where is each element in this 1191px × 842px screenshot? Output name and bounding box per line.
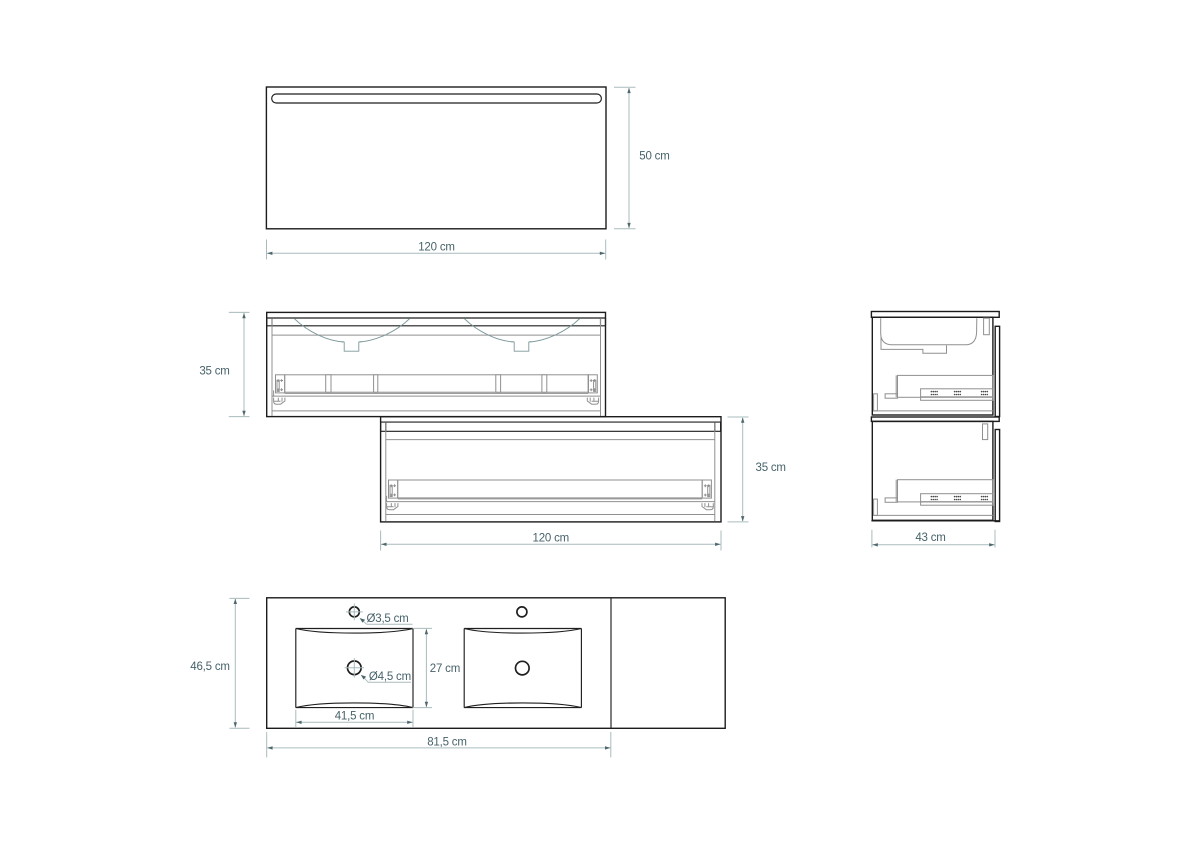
svg-text:43 cm: 43 cm (915, 532, 945, 544)
svg-text:35 cm: 35 cm (756, 462, 786, 474)
svg-text:120 cm: 120 cm (533, 532, 570, 544)
svg-text:120 cm: 120 cm (418, 242, 455, 254)
svg-text:35 cm: 35 cm (199, 366, 229, 378)
svg-text:Ø4,5 cm: Ø4,5 cm (369, 671, 411, 683)
svg-text:27 cm: 27 cm (430, 663, 460, 675)
svg-text:50 cm: 50 cm (639, 150, 669, 162)
svg-text:41,5 cm: 41,5 cm (335, 710, 375, 722)
svg-text:46,5 cm: 46,5 cm (190, 661, 230, 673)
svg-text:81,5 cm: 81,5 cm (427, 737, 467, 749)
svg-text:Ø3,5 cm: Ø3,5 cm (367, 613, 409, 625)
